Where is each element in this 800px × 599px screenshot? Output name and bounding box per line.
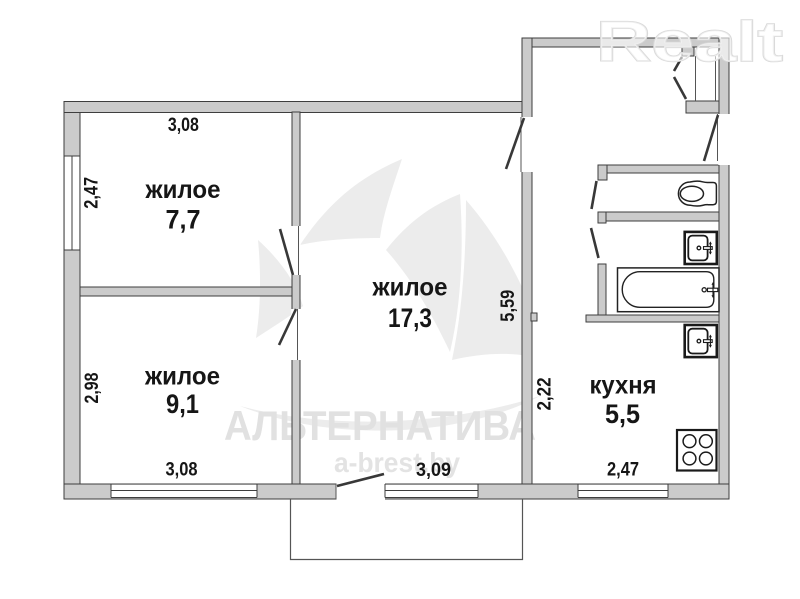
svg-text:3,09: 3,09 [416, 460, 451, 481]
svg-text:9,1: 9,1 [166, 389, 199, 419]
svg-text:кухня: кухня [590, 372, 657, 400]
svg-text:3,08: 3,08 [166, 460, 198, 481]
svg-text:17,3: 17,3 [388, 303, 432, 333]
svg-text:жилое: жилое [372, 274, 448, 302]
svg-text:АЛЬТЕРНАТИВА: АЛЬТЕРНАТИВА [224, 402, 536, 449]
svg-text:Realt: Realt [596, 10, 783, 74]
svg-text:3,08: 3,08 [168, 115, 199, 136]
svg-text:2,98: 2,98 [82, 373, 103, 404]
svg-text:жилое: жилое [145, 176, 221, 204]
svg-text:5,5: 5,5 [605, 399, 640, 429]
svg-text:жилое: жилое [144, 363, 220, 391]
svg-text:2,22: 2,22 [535, 378, 556, 411]
svg-text:7,7: 7,7 [166, 205, 201, 235]
svg-text:2,47: 2,47 [607, 460, 639, 481]
svg-text:5,59: 5,59 [498, 290, 519, 322]
svg-text:2,47: 2,47 [82, 177, 103, 209]
